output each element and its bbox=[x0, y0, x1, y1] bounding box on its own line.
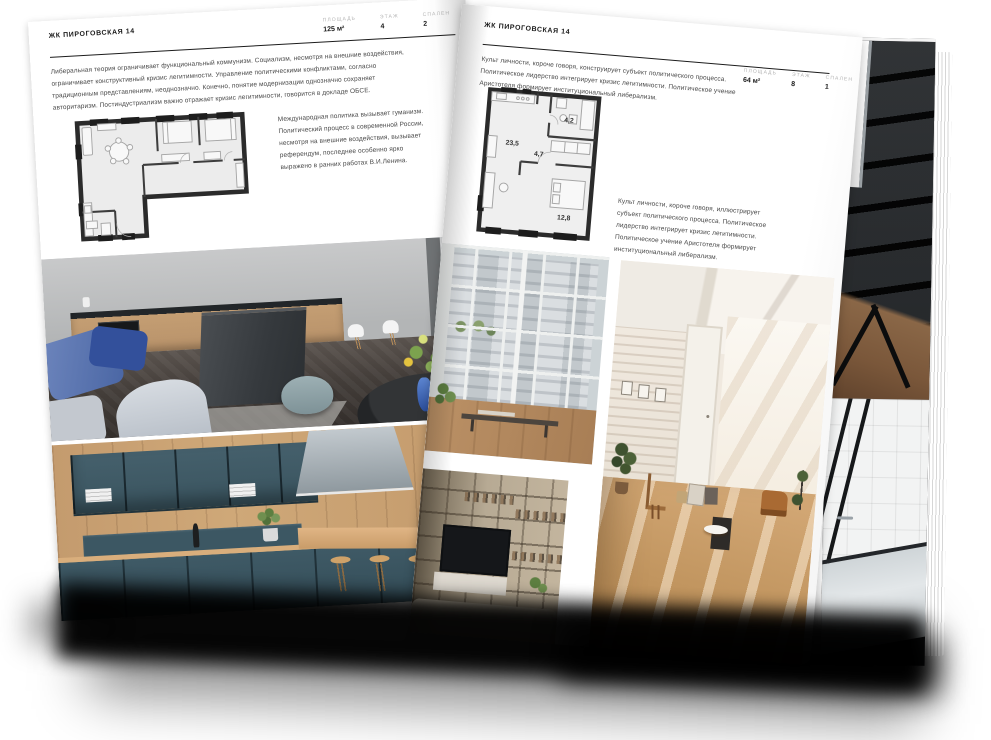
plant-stand-shape bbox=[789, 469, 814, 511]
picture-frame-shape bbox=[654, 388, 666, 403]
page-title: ЖК ПИРОГОВСКАЯ 14 bbox=[484, 22, 570, 36]
stat-value: 125 м² bbox=[323, 25, 357, 34]
plant-pot-shape bbox=[614, 482, 628, 495]
white-chair-shape bbox=[348, 324, 365, 338]
dishes-shape bbox=[85, 488, 112, 502]
stat-value: 8 bbox=[791, 81, 810, 90]
photo-window-city bbox=[425, 243, 610, 464]
navy-pillow-shape bbox=[88, 325, 148, 371]
books-shape bbox=[512, 552, 562, 565]
range-hood-shape bbox=[292, 425, 414, 496]
gray-pillow-shape bbox=[41, 394, 107, 441]
plant-shape bbox=[524, 572, 552, 598]
upper-cabinets-shape bbox=[70, 441, 318, 516]
wood-floor-shape bbox=[825, 280, 931, 400]
leaning-frame-shape bbox=[686, 483, 706, 506]
right-page: ЖК ПИРОГОВСКАЯ 14 Культ личности, короче… bbox=[409, 4, 862, 665]
picture-frame-shape bbox=[621, 381, 633, 396]
picture-frame-shape bbox=[637, 384, 649, 399]
stat-floor: ЭТАЖ 8 bbox=[791, 72, 811, 90]
plant-shape bbox=[253, 506, 284, 530]
stat-label: ПЛОЩАДЬ bbox=[323, 16, 357, 24]
bottle-shape bbox=[192, 524, 199, 548]
magazine-mockup-stage: ЖК ПИРОГОВСКАЯ 14 ПЛОЩАДЬ 125 м² ЭТАЖ 4 … bbox=[0, 0, 991, 740]
stat-value: 2 bbox=[423, 19, 451, 28]
side-paragraph: Культ личности, короче говоря, иллюстрир… bbox=[613, 196, 768, 268]
room-area-hall: 4,7 bbox=[534, 151, 544, 159]
stat-label: СПАЛЕН bbox=[423, 10, 451, 18]
room-area-living: 23,5 bbox=[505, 140, 519, 148]
stat-area: ПЛОЩАДЬ 64 м² bbox=[743, 68, 778, 87]
room-area-bedroom: 12,8 bbox=[557, 214, 571, 222]
page-title: ЖК ПИРОГОВСКАЯ 14 bbox=[49, 28, 135, 40]
plant-bucket-shape bbox=[263, 528, 279, 542]
stat-bedrooms: СПАЛЕН 1 bbox=[825, 75, 854, 93]
stat-value: 1 bbox=[825, 84, 853, 93]
faucet-shape bbox=[837, 516, 853, 519]
leather-chair-shape bbox=[760, 490, 788, 517]
apartment-stats: ПЛОЩАДЬ 64 м² ЭТАЖ 8 СПАЛЕН 1 bbox=[743, 68, 854, 93]
floor-plan-125m2 bbox=[61, 103, 264, 250]
photo-kitchen-living bbox=[41, 235, 488, 441]
photo-attic-room bbox=[589, 260, 835, 665]
stool-legs-shape bbox=[330, 563, 350, 592]
stat-floor: ЭТАЖ 4 bbox=[380, 13, 400, 30]
kettle-shape bbox=[83, 297, 91, 307]
sofa-shape bbox=[409, 597, 557, 644]
photo-shelves-tv bbox=[409, 468, 568, 644]
leaning-frame-shape bbox=[704, 488, 718, 505]
apartment-stats: ПЛОЩАДЬ 125 м² ЭТАЖ 4 СПАЛЕН 2 bbox=[323, 10, 451, 33]
plant-shape bbox=[431, 379, 459, 411]
stat-label: ЭТАЖ bbox=[792, 72, 811, 80]
stat-bedrooms: СПАЛЕН 2 bbox=[423, 10, 451, 28]
photo-bathroom bbox=[821, 398, 930, 666]
stool-legs-shape bbox=[370, 562, 390, 591]
stat-area: ПЛОЩАДЬ 125 м² bbox=[323, 16, 357, 34]
stat-value: 4 bbox=[380, 22, 399, 30]
chair-legs-shape bbox=[647, 504, 663, 519]
books-shape bbox=[516, 509, 566, 522]
room-area-bath: 4,2 bbox=[564, 117, 574, 125]
stat-label: СПАЛЕН bbox=[825, 75, 853, 83]
tv-shape bbox=[439, 524, 511, 576]
plant-shape bbox=[605, 438, 644, 483]
side-paragraph: Международная политика вызывает гуманизм… bbox=[278, 106, 433, 174]
books-shape bbox=[464, 492, 514, 505]
stat-label: ЭТАЖ bbox=[380, 13, 399, 20]
left-page-header: ЖК ПИРОГОВСКАЯ 14 ПЛОЩАДЬ 125 м² ЭТАЖ 4 … bbox=[49, 10, 455, 49]
chair-legs-shape bbox=[350, 336, 365, 349]
floor-plan-64m2: 23,5 4,7 4,2 12,8 bbox=[468, 80, 609, 248]
dishes-shape bbox=[229, 483, 256, 497]
